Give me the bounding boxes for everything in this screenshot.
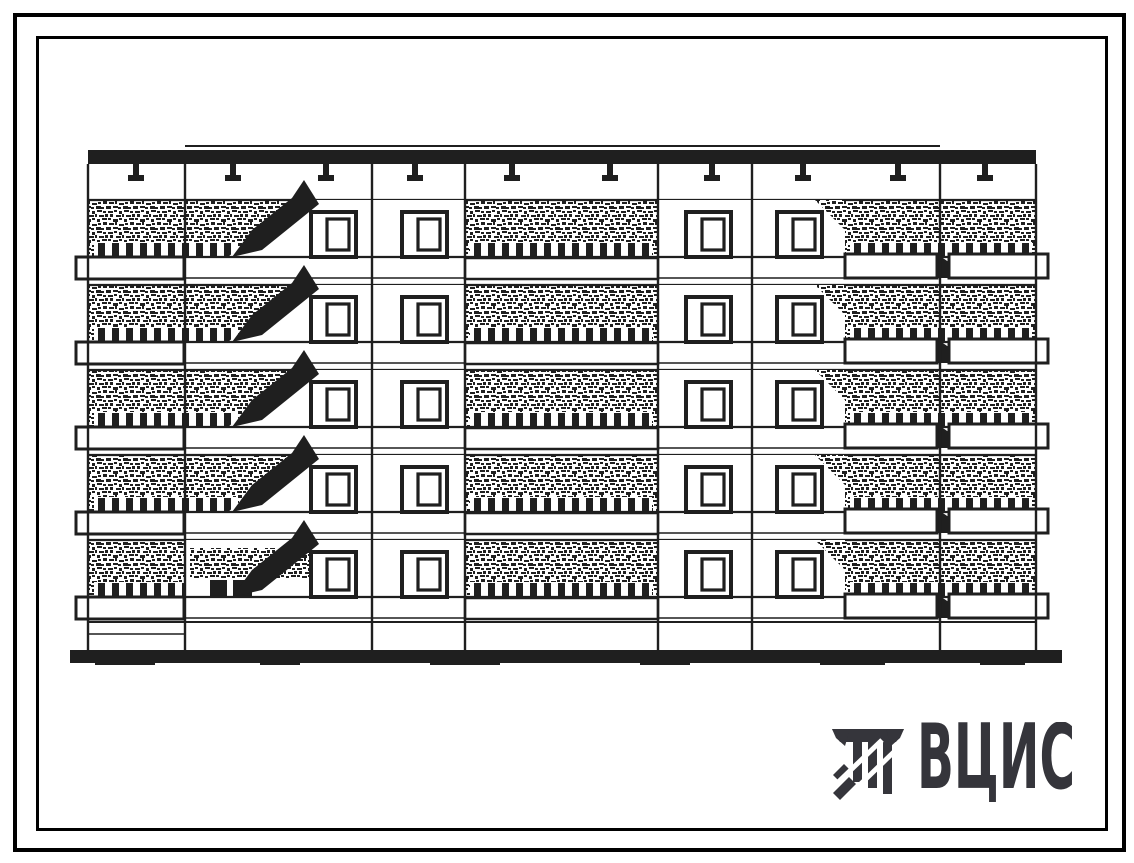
facade (70, 146, 1062, 665)
vcis-logo: ВЦИС (830, 722, 1087, 808)
vcis-logo-icon (830, 722, 906, 800)
parapet-vents (128, 164, 993, 181)
drawing-sheet: ВЦИС (0, 0, 1134, 863)
ground-line (70, 650, 1062, 665)
vcis-logo-text: ВЦИС (917, 722, 1087, 808)
logo-wordmark: ВЦИС (917, 722, 1075, 808)
roof-band (88, 146, 1036, 164)
floor-row-5 (76, 180, 1048, 279)
plinth (88, 622, 1036, 634)
